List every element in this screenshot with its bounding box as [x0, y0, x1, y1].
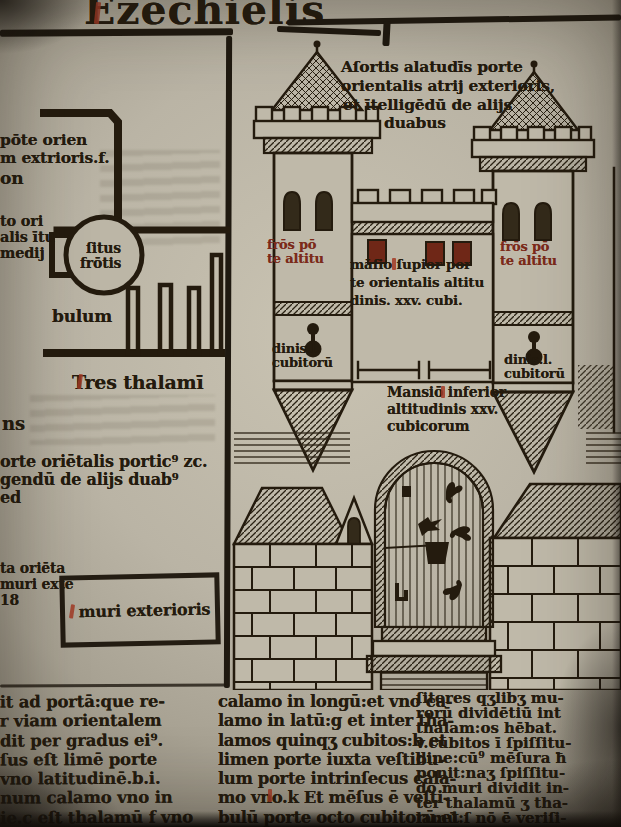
door-step — [382, 627, 486, 641]
machicolation-band — [264, 138, 372, 153]
left-fragment: to ori — [0, 212, 43, 229]
woodcut-caption-line: orientalis atrij exterioris, — [341, 76, 555, 95]
right-tower-base — [493, 392, 573, 472]
text-line: num calamo vno in — [0, 788, 193, 808]
right-tower-crenellation — [472, 127, 594, 157]
left-roof — [234, 488, 350, 544]
door-step — [373, 641, 495, 656]
left-tower-label: frōs pō — [267, 237, 316, 252]
text-line: ſus eſt limē porte — [0, 749, 193, 769]
left-tower-height-label: cubitorū — [272, 355, 333, 370]
tower-window — [316, 192, 332, 230]
left-paragraph-line: gendū de alijs duab⁹ — [0, 470, 179, 489]
left-fragment: medij — [0, 244, 44, 261]
woodcut-caption-line: duabus — [384, 113, 446, 132]
left-fragment: pōte orien — [0, 130, 87, 149]
ground-band-left — [234, 428, 350, 468]
upper-mansion-inscription: māſio ſupior por — [350, 256, 471, 272]
door-basket — [425, 542, 449, 564]
lower-mansion-inscription: Mansiō inferior — [387, 384, 506, 400]
comb-tooth — [128, 288, 138, 353]
thin-rule — [0, 683, 226, 687]
text-line: ie.c eſt thalamū f vno — [0, 807, 193, 827]
left-tower-label: te altitu — [267, 251, 324, 266]
left-fragment: 18 — [0, 592, 19, 608]
left-paragraph-line: ed — [0, 488, 21, 507]
tower-window — [503, 203, 519, 240]
text-line: it ad portā:que re- — [0, 691, 193, 711]
text-line: lamū:ſ nō ē veriſi- — [416, 811, 571, 826]
tower-window — [535, 203, 551, 240]
left-fragment: m extrioris.f. — [0, 148, 109, 167]
bottom-column-3: ſitores qʒlibʒ mu- rorū dividētiū int th… — [416, 691, 571, 826]
left-fragment: on — [0, 168, 23, 188]
door-knob — [402, 486, 411, 497]
right-tower-height-label: dinis.l. — [504, 352, 552, 367]
lower-mansion-inscription: cubicorum — [387, 418, 469, 434]
incunable-book-page: Ezechielis pōte orien m extrioris.f. on … — [0, 0, 621, 827]
gable-window — [348, 518, 360, 544]
text-line: dit per gradus ei⁹. — [0, 730, 193, 750]
situs-frontis-label: frōtis — [80, 255, 121, 271]
right-tower-label: te altitu — [500, 253, 557, 268]
tower-mid-band — [493, 312, 573, 325]
right-tower-label: frōs pō — [500, 239, 549, 254]
upper-mansion-inscription: dinis. xxv. cubi. — [350, 292, 462, 308]
left-fragment: ns — [2, 413, 25, 434]
situs-frontis-label: ſitus — [86, 240, 121, 256]
text-line: vno latitudinē.b.i. — [0, 769, 193, 789]
door-step — [367, 656, 501, 672]
bottom-column-1: it ad portā:que re- r viam orientalem di… — [0, 691, 193, 827]
machicolation-band — [480, 157, 586, 171]
right-brick-wall — [490, 538, 621, 690]
right-top-rule — [287, 14, 621, 25]
left-fragment: alis ītu — [0, 228, 55, 245]
right-roof — [494, 484, 621, 538]
left-fragment: ta oriēta — [0, 560, 65, 576]
upper-mansion-inscription: te orientalis altitu — [350, 274, 484, 290]
left-tower-height-label: dinis.l. — [272, 341, 320, 356]
woodcut-caption-line: Aſortis alatudīs porte — [341, 57, 523, 76]
tres-thalami-caption: Tres thalamī — [72, 371, 204, 393]
right-tower-height-label: cubitorū — [504, 366, 565, 381]
left-column-top-rule — [0, 28, 233, 37]
comb-tooth — [212, 255, 221, 353]
foreground-scene — [234, 428, 621, 690]
wall-hatch-band — [352, 222, 493, 234]
comb-tooth — [160, 285, 171, 353]
left-paragraph-line: orte oriētalis portic⁹ zc. — [0, 452, 207, 471]
tower-mid-band — [274, 302, 352, 315]
mid-rule-fragment — [277, 26, 381, 36]
text-line: r viam orientalem — [0, 711, 193, 731]
vestibulum-fragment: bulum — [52, 306, 112, 326]
lower-mansion-inscription: altitudinis xxv. — [387, 401, 498, 417]
muri-exterioris-box: muri exterioris — [59, 572, 220, 647]
wall-crenellation — [352, 190, 496, 222]
muri-exterioris-label: muri exterioris — [78, 599, 210, 621]
rubric-mark — [69, 604, 75, 618]
woodcut-caption-line: et ītelligēdū de alijs — [343, 95, 512, 114]
comb-tooth — [189, 288, 199, 353]
door-step — [381, 672, 487, 690]
tower-window — [284, 192, 300, 230]
ground-band-right — [586, 430, 621, 468]
right-side-hatch — [578, 365, 614, 429]
